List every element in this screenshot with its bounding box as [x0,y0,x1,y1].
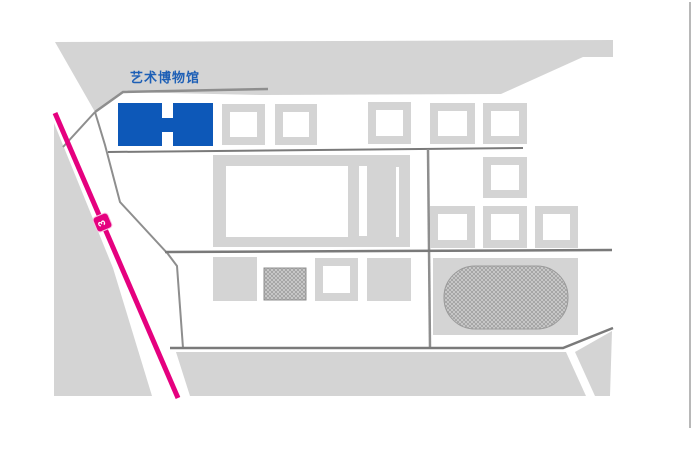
map-canvas[interactable]: 艺术博物馆 3 [0,0,692,463]
map-graphic [0,0,692,463]
station-number: 3 [96,217,107,226]
west-wedge-block [54,123,152,396]
hollow-building-4-court [438,111,467,136]
hollow-building-2-court [283,112,309,137]
hollow-building-6-court [491,165,519,190]
art-museum-building-notch-2 [162,132,173,146]
hollow-building-1-court [230,112,257,137]
solid-building-1 [213,257,257,301]
courtyard-building-cut-3 [396,167,399,237]
south-block [176,352,586,396]
museum-label: 艺术博物馆 [130,71,200,84]
hollow-building-5-court [491,111,519,136]
hollow-building-10-court [323,266,350,293]
road-lower [165,250,612,252]
hollow-building-3-court [376,110,403,136]
courtyard-building-cut-2 [359,166,367,236]
hollow-building-7-court [438,214,467,240]
solid-building-2 [367,258,411,301]
hollow-building-8-court [491,214,519,240]
hollow-building-9-court [543,214,570,240]
art-museum-building-notch-1 [162,103,173,118]
stadium-field [444,266,568,329]
road-vertical [428,149,430,348]
courtyard-building-cut-1 [226,166,348,237]
hatched-building [264,268,306,300]
road-mid [108,148,523,152]
